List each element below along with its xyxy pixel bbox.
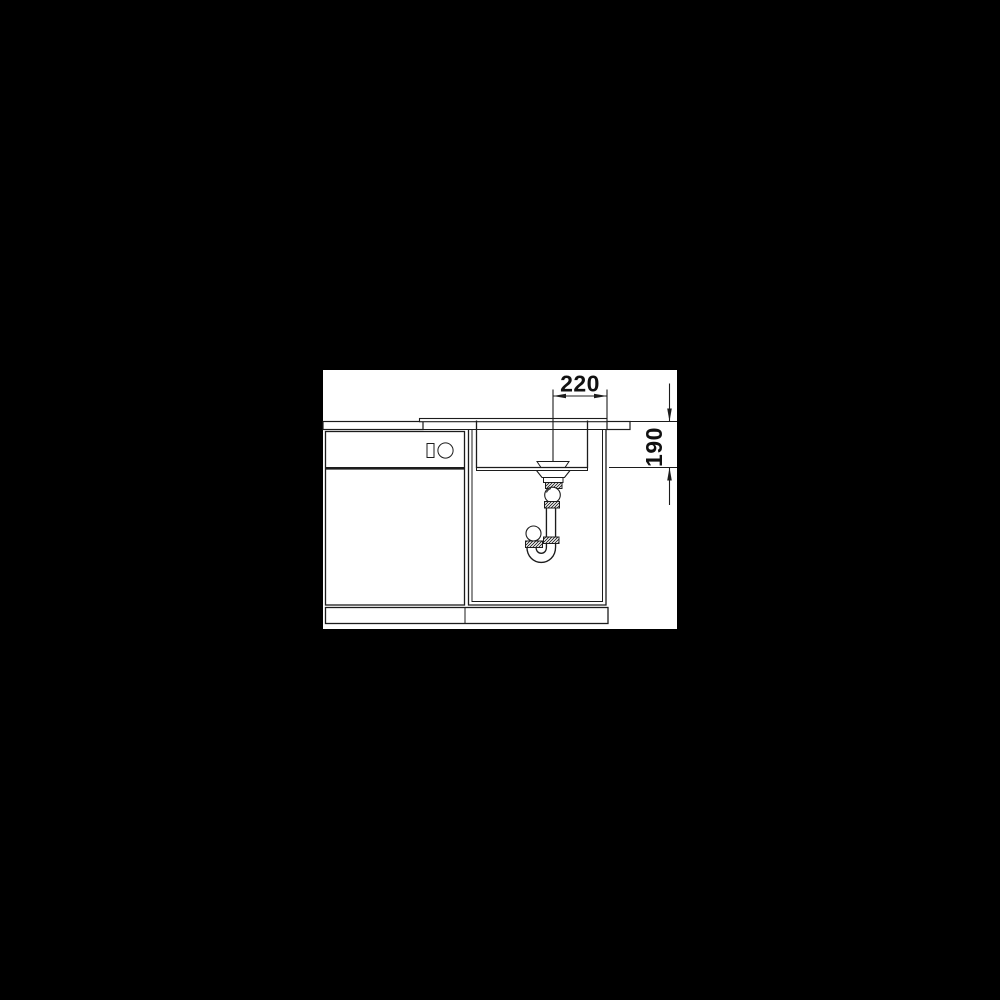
page-background: 220 190 [0,0,1000,1000]
sink-rim-flange [420,419,608,422]
drain-union-nut-4 [526,541,543,548]
sink-installation-diagram: 220 190 [0,0,1000,1000]
drawing-canvas [323,370,677,629]
drain-union-nut-3 [544,537,560,544]
drain-flange [537,471,571,478]
drain-strainer-body [544,478,564,483]
trap-outlet-pipe-end [526,526,541,541]
dimension-220-label: 220 [560,371,600,397]
dimension-190-label: 190 [641,427,667,467]
drain-union-nut-2 [545,502,560,509]
drain-ball-joint [545,487,561,503]
